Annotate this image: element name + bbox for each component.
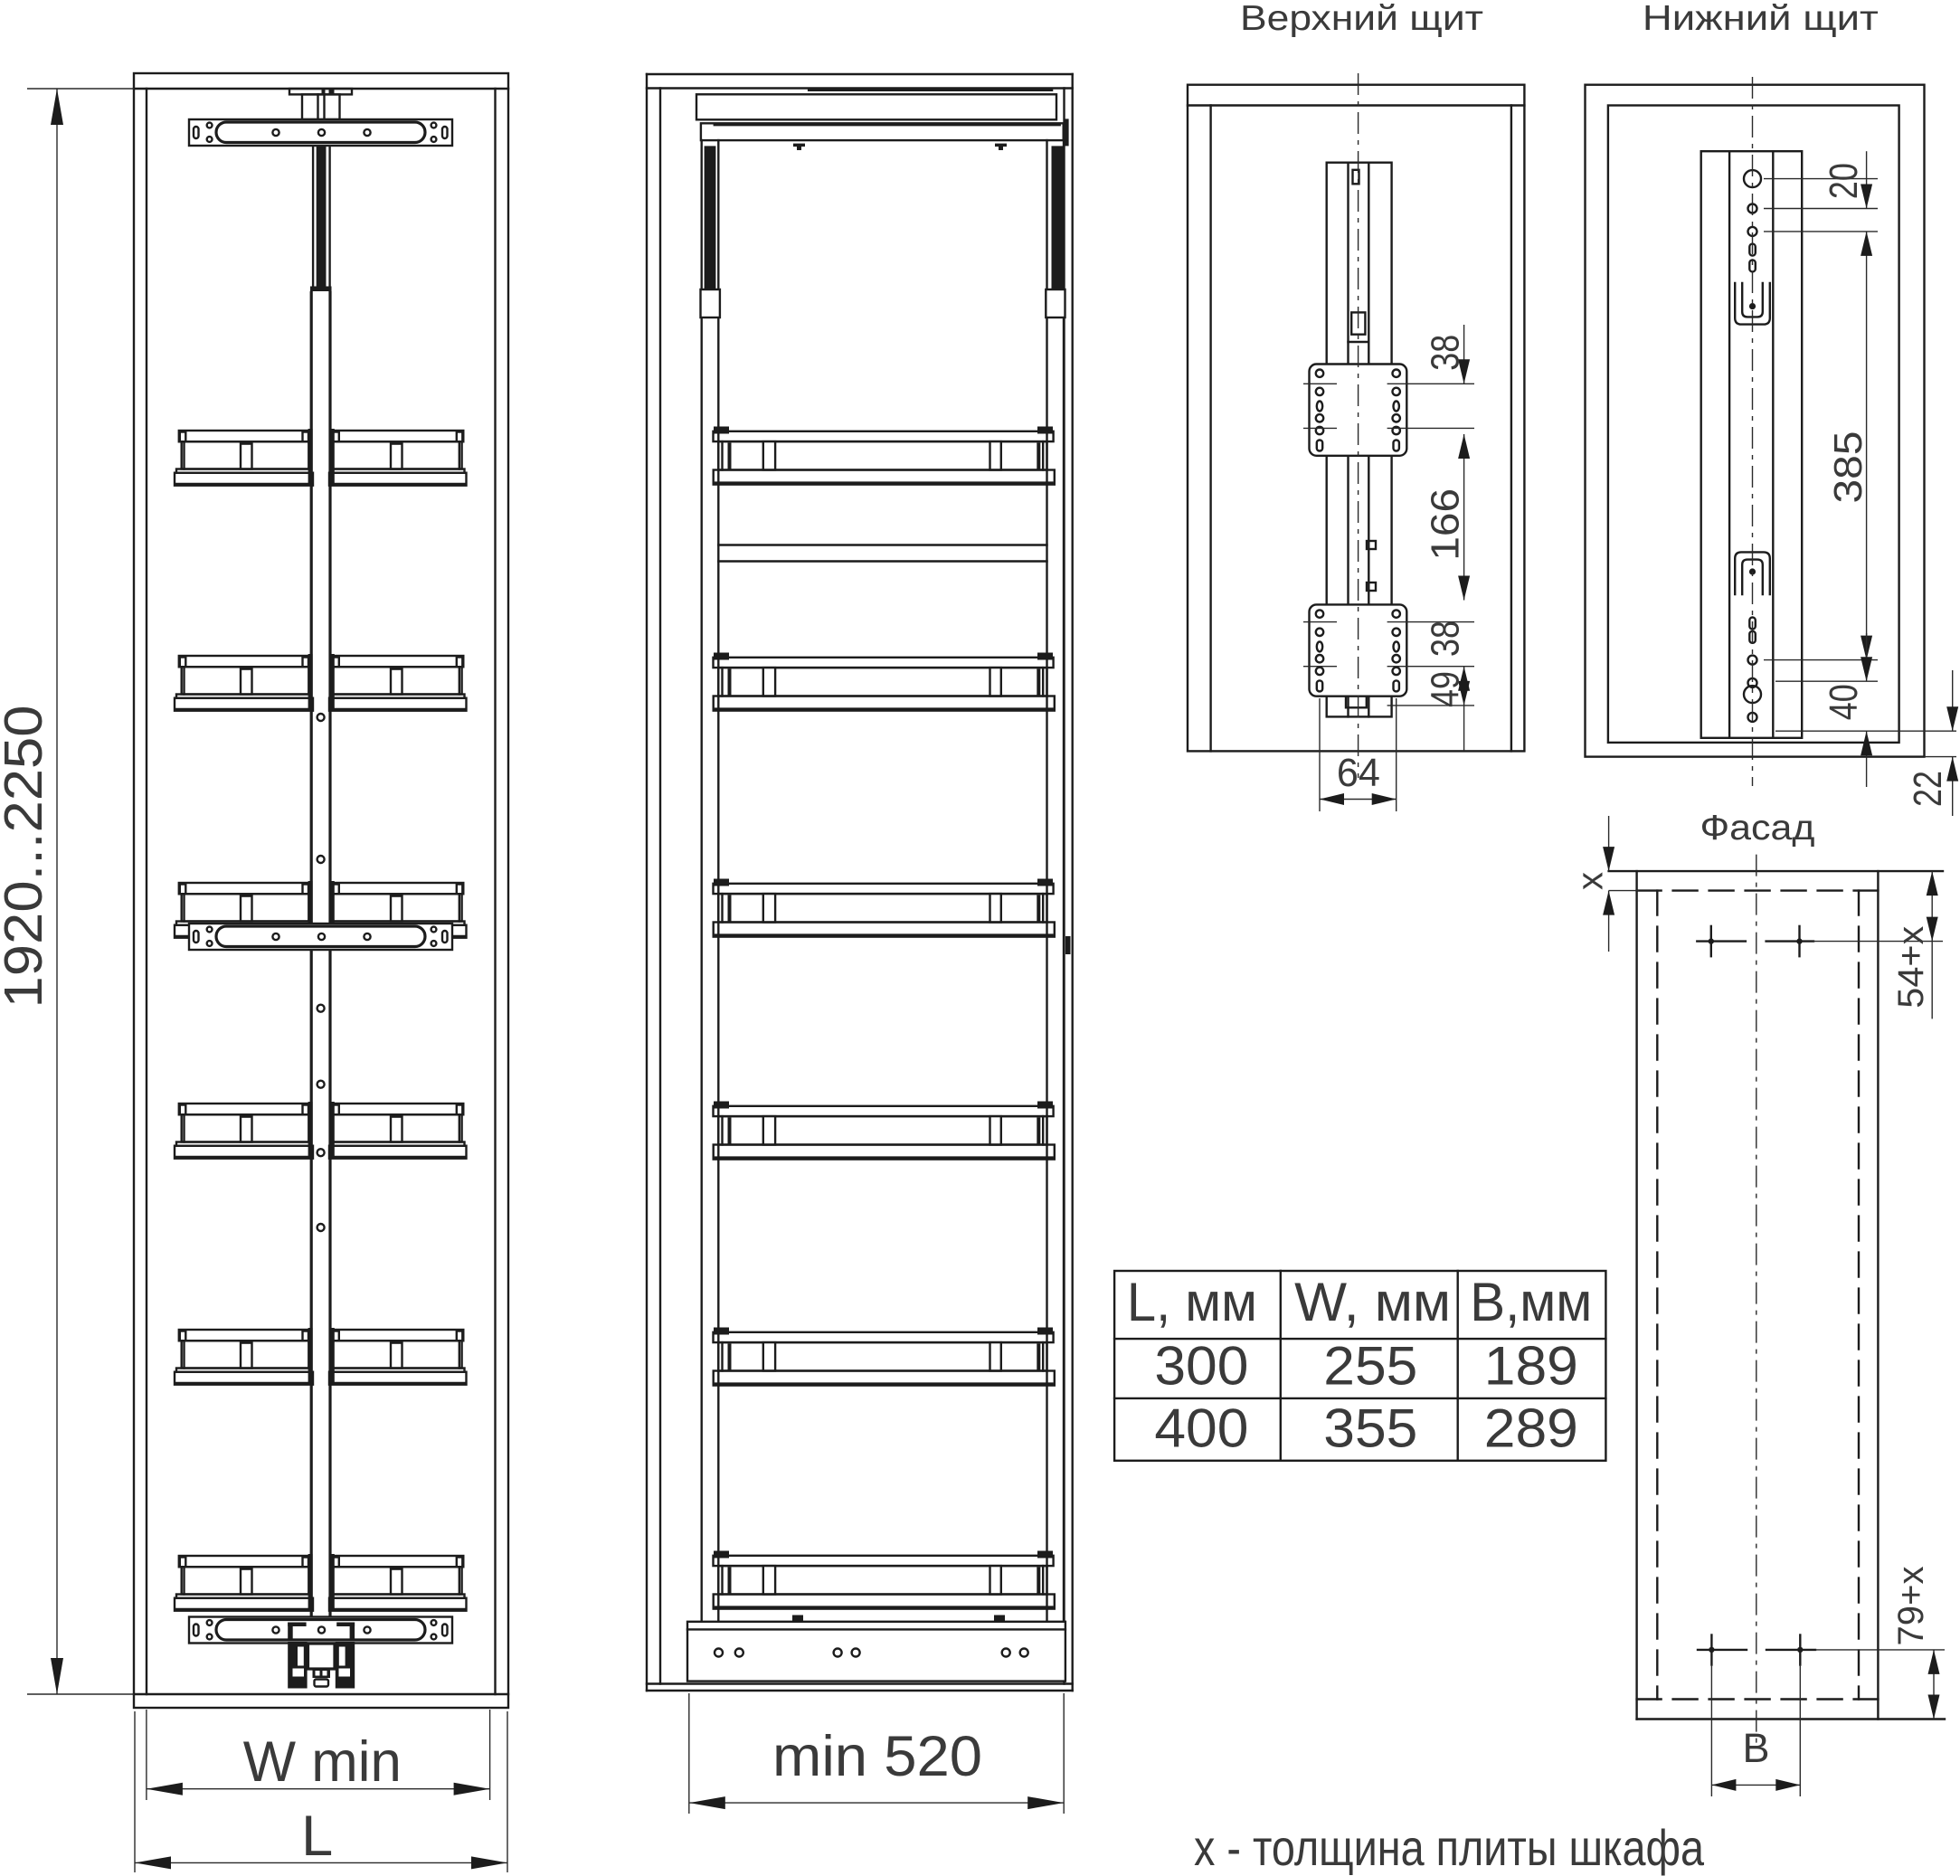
svg-text:79+x: 79+x bbox=[1891, 1567, 1931, 1646]
svg-text:Верхний щит: Верхний щит bbox=[1240, 0, 1483, 38]
svg-text:L, мм: L, мм bbox=[1127, 1272, 1257, 1332]
svg-text:min 520: min 520 bbox=[772, 1725, 982, 1788]
svg-text:166: 166 bbox=[1424, 488, 1468, 561]
svg-text:x: x bbox=[1571, 872, 1611, 890]
svg-text:38: 38 bbox=[1424, 335, 1468, 371]
svg-text:40: 40 bbox=[1822, 684, 1866, 720]
svg-text:189: 189 bbox=[1484, 1336, 1578, 1397]
svg-text:22: 22 bbox=[1906, 771, 1950, 807]
svg-text:400: 400 bbox=[1154, 1398, 1248, 1459]
svg-text:385: 385 bbox=[1826, 431, 1870, 504]
svg-text:289: 289 bbox=[1484, 1398, 1578, 1459]
svg-text:355: 355 bbox=[1323, 1398, 1417, 1459]
svg-text:х - толщина плиты шкафа: х - толщина плиты шкафа bbox=[1194, 1819, 1705, 1876]
svg-text:W min: W min bbox=[243, 1730, 402, 1794]
svg-text:38: 38 bbox=[1424, 621, 1468, 657]
svg-text:B: B bbox=[1742, 1725, 1769, 1771]
svg-text:64: 64 bbox=[1337, 751, 1380, 795]
svg-text:L: L bbox=[301, 1805, 333, 1868]
svg-text:54+x: 54+x bbox=[1891, 926, 1931, 1009]
svg-text:255: 255 bbox=[1323, 1336, 1417, 1397]
svg-text:300: 300 bbox=[1154, 1336, 1248, 1397]
svg-text:1920...2250: 1920...2250 bbox=[0, 706, 53, 1009]
svg-text:B,мм: B,мм bbox=[1470, 1272, 1592, 1332]
svg-text:W, мм: W, мм bbox=[1294, 1272, 1451, 1332]
svg-text:49: 49 bbox=[1424, 671, 1468, 707]
svg-text:Фасад: Фасад bbox=[1700, 809, 1815, 848]
svg-text:20: 20 bbox=[1822, 163, 1866, 199]
svg-text:Нижний щит: Нижний щит bbox=[1643, 0, 1879, 38]
